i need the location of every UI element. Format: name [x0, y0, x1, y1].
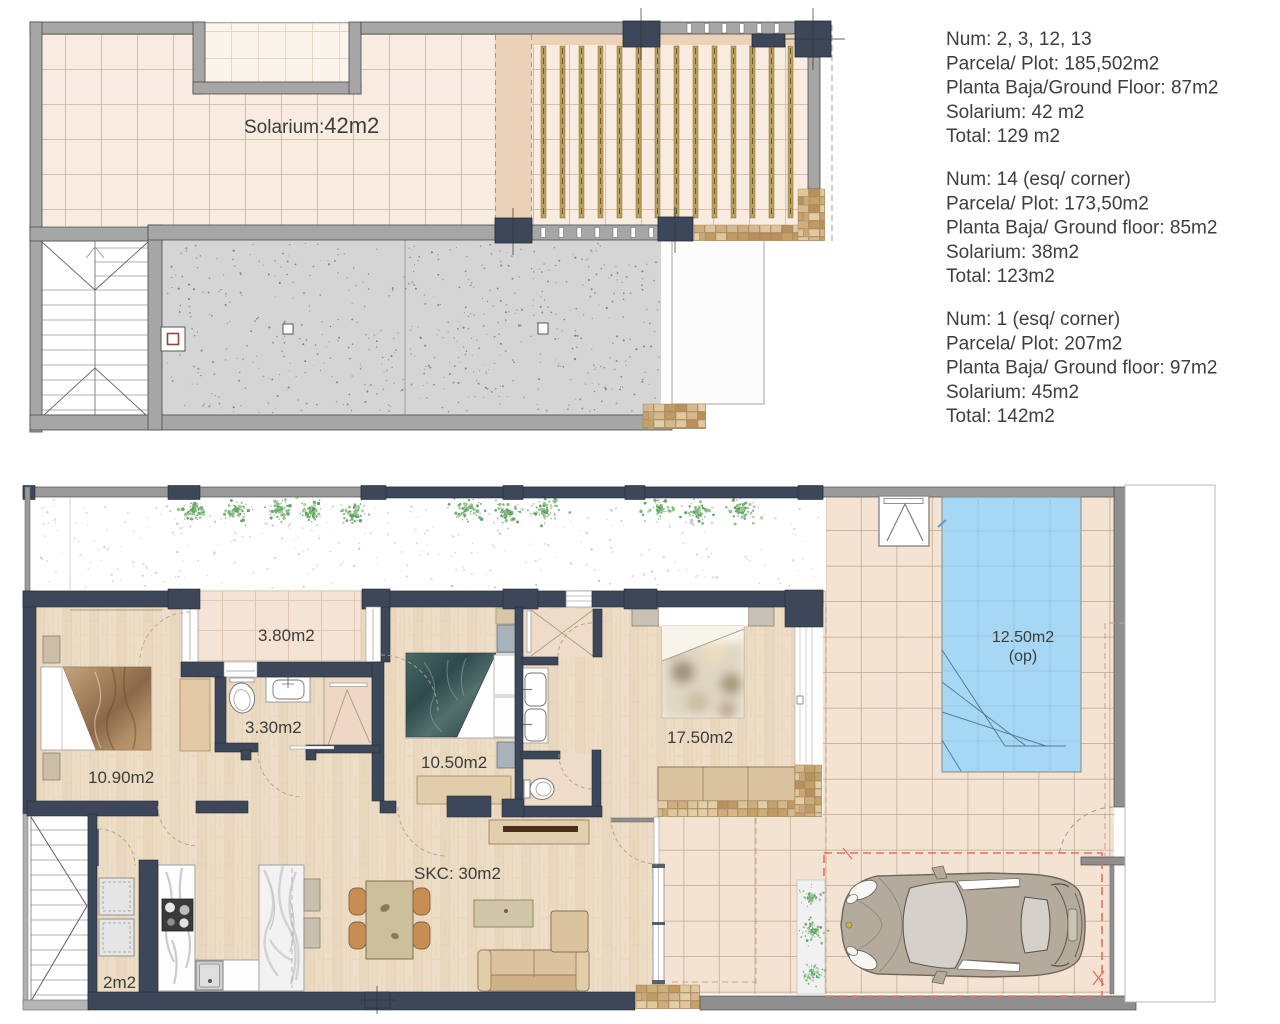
svg-text:Total: 129 m2: Total: 129 m2 [946, 126, 1060, 147]
svg-text:SKC: 30m2: SKC: 30m2 [414, 864, 501, 883]
svg-text:2m2: 2m2 [103, 973, 136, 992]
svg-text:Parcela/ Plot: 173,50m2: Parcela/ Plot: 173,50m2 [946, 193, 1149, 214]
svg-text:Total: 142m2: Total: 142m2 [946, 406, 1055, 427]
svg-text:Num: 2, 3, 12, 13: Num: 2, 3, 12, 13 [946, 29, 1092, 50]
svg-text:Solarium: 38m2: Solarium: 38m2 [946, 242, 1079, 263]
svg-text:3.80m2: 3.80m2 [258, 626, 315, 645]
svg-text:(op): (op) [1009, 648, 1037, 665]
svg-text:Solarium: 42 m2: Solarium: 42 m2 [946, 102, 1084, 123]
svg-text:Planta Baja/Ground Floor: 87m2: Planta Baja/Ground Floor: 87m2 [946, 78, 1219, 99]
svg-text:Planta Baja/ Ground floor: 97m: Planta Baja/ Ground floor: 97m2 [946, 358, 1217, 379]
svg-text:Solarium:42m2: Solarium:42m2 [244, 113, 379, 138]
svg-text:17.50m2: 17.50m2 [667, 728, 733, 747]
svg-text:3.30m2: 3.30m2 [245, 718, 302, 737]
svg-text:10.90m2: 10.90m2 [88, 768, 154, 787]
svg-text:Parcela/ Plot: 207m2: Parcela/ Plot: 207m2 [946, 333, 1122, 354]
svg-text:Num: 14 (esq/ corner): Num: 14 (esq/ corner) [946, 169, 1131, 190]
svg-text:10.50m2: 10.50m2 [421, 753, 487, 772]
svg-text:Planta Baja/ Ground floor: 85m: Planta Baja/ Ground floor: 85m2 [946, 218, 1217, 239]
svg-text:12.50m2: 12.50m2 [992, 629, 1054, 646]
svg-text:Num: 1 (esq/ corner): Num: 1 (esq/ corner) [946, 309, 1120, 330]
svg-text:Total: 123m2: Total: 123m2 [946, 266, 1055, 287]
svg-text:Parcela/ Plot: 185,502m2: Parcela/ Plot: 185,502m2 [946, 53, 1159, 74]
svg-text:Solarium: 45m2: Solarium: 45m2 [946, 382, 1079, 403]
